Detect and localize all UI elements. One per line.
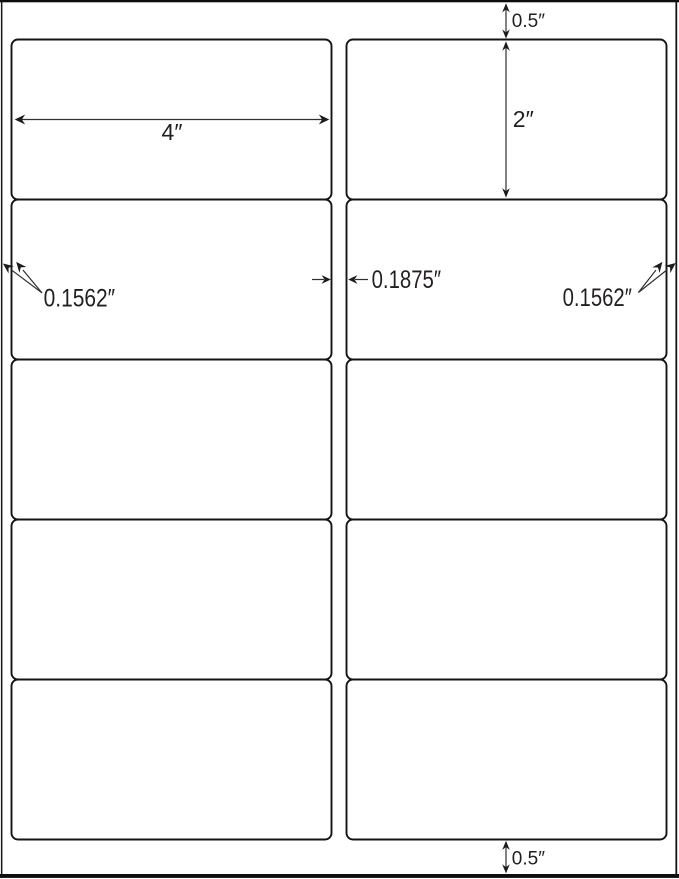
svg-text:0.1875″: 0.1875″ [372, 266, 442, 294]
svg-text:0.5″: 0.5″ [512, 11, 545, 32]
svg-text:0.1562″: 0.1562″ [563, 284, 632, 312]
svg-text:0.1562″: 0.1562″ [44, 284, 116, 312]
svg-text:4″: 4″ [162, 119, 183, 145]
svg-text:0.5″: 0.5″ [512, 849, 545, 870]
svg-text:2″: 2″ [513, 106, 534, 132]
